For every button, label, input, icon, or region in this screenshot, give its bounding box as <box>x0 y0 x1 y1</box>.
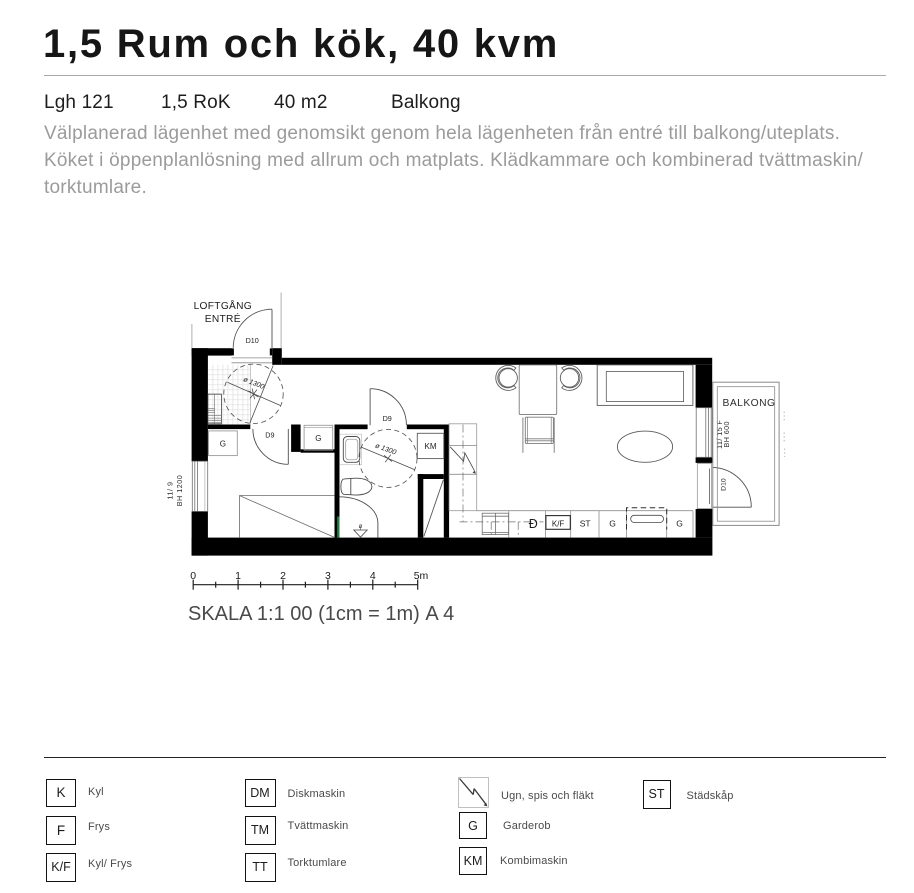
svg-text:BH 600: BH 600 <box>722 421 731 447</box>
svg-text:SKALA 1:1 00 (1cm = 1m) A 4: SKALA 1:1 00 (1cm = 1m) A 4 <box>188 603 454 625</box>
svg-text:Đ: Đ <box>529 517 538 531</box>
svg-text:D10: D10 <box>246 336 259 345</box>
svg-text:0: 0 <box>190 570 196 582</box>
svg-text:ø: ø <box>359 524 363 530</box>
svg-text:G: G <box>676 519 683 529</box>
svg-text:2: 2 <box>280 570 286 582</box>
svg-text:G: G <box>609 519 616 529</box>
svg-text:D10: D10 <box>721 478 728 491</box>
svg-text:K/F: K/F <box>552 519 565 528</box>
svg-text:KM: KM <box>425 442 437 451</box>
svg-text:G: G <box>220 440 226 449</box>
svg-text:5m: 5m <box>414 570 429 582</box>
svg-text:BH 1200: BH 1200 <box>175 475 184 506</box>
svg-text:1: 1 <box>235 570 241 582</box>
svg-text:ST: ST <box>580 519 591 529</box>
svg-text:4: 4 <box>370 570 376 582</box>
svg-text:D9: D9 <box>265 431 274 440</box>
svg-text:ø 1300: ø 1300 <box>242 376 265 391</box>
svg-text:D9: D9 <box>383 414 392 423</box>
svg-text:ENTRÉ: ENTRÉ <box>205 312 241 325</box>
svg-text:G: G <box>315 434 321 443</box>
svg-text:3: 3 <box>325 570 331 582</box>
svg-text:BALKONG: BALKONG <box>723 398 776 409</box>
svg-text:11/ 9: 11/ 9 <box>166 482 175 500</box>
svg-text:LOFTGÅNG: LOFTGÅNG <box>194 299 252 312</box>
svg-text:ø 1300: ø 1300 <box>374 443 397 457</box>
